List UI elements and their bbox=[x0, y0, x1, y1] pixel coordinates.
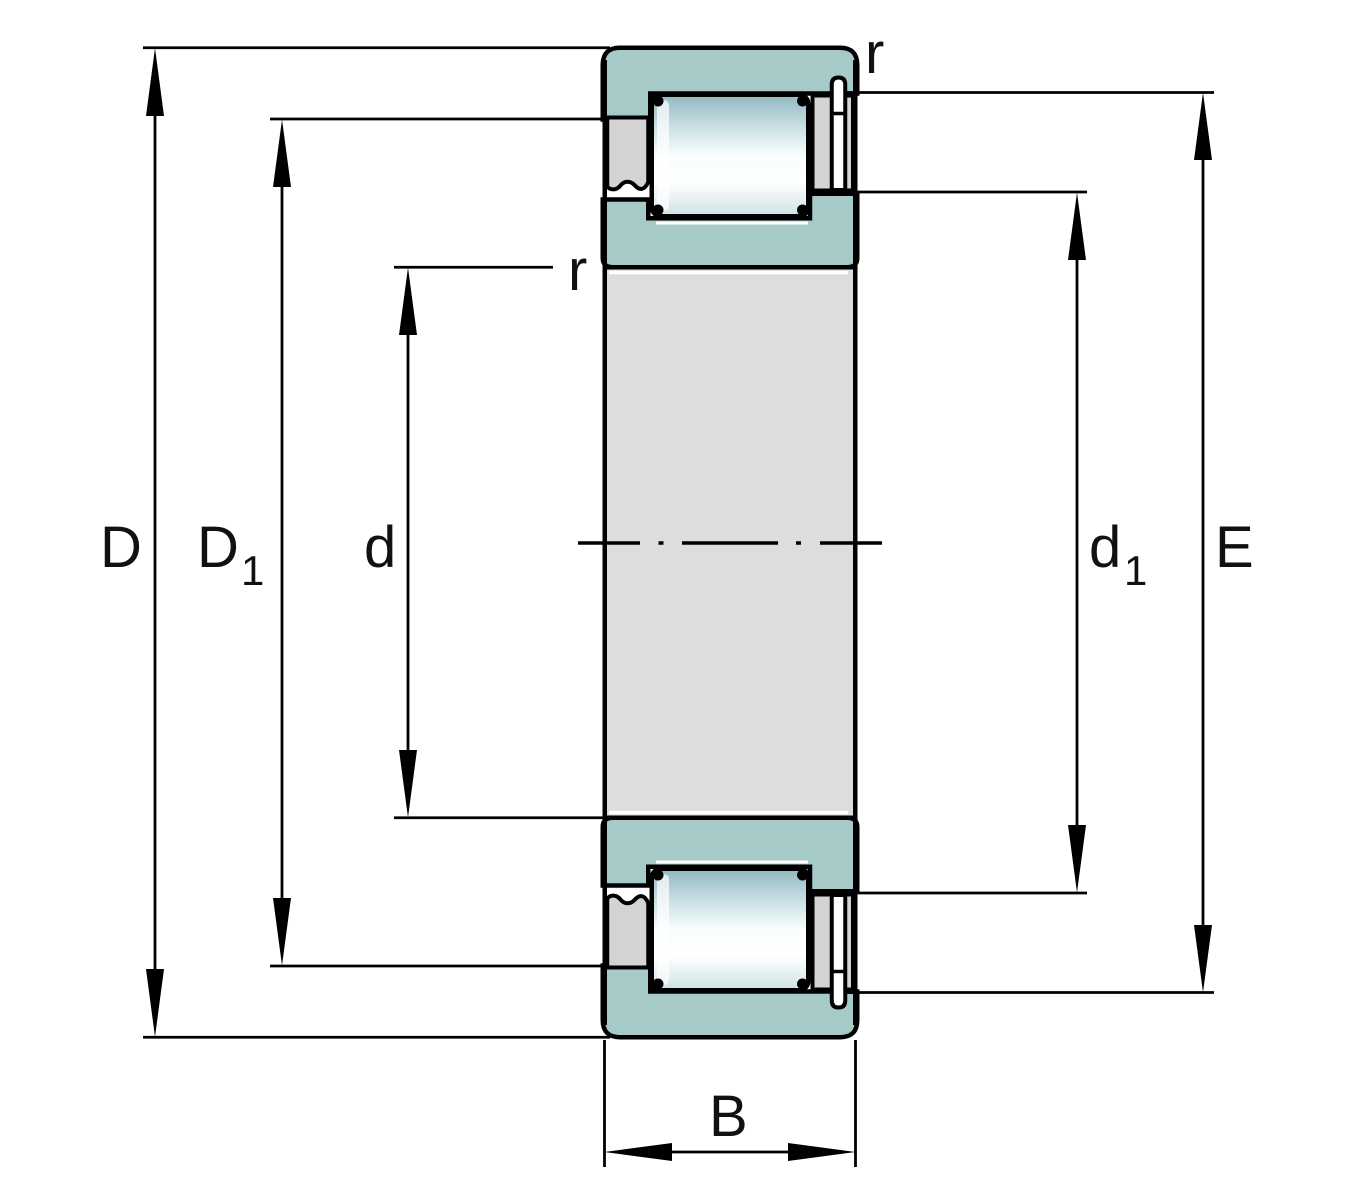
label-outside-diameter: D bbox=[100, 515, 142, 580]
bearing-dimension-diagram: D D 1 d d 1 E B r r bbox=[0, 0, 1350, 1200]
arrow-D1-bottom bbox=[273, 898, 291, 966]
dimension-d1 bbox=[1068, 193, 1086, 893]
label-inner-chamfer: r bbox=[568, 238, 587, 303]
dimension-D bbox=[146, 48, 164, 1037]
label-outer-flange-diameter: D bbox=[197, 515, 239, 580]
roller-corner-dot bbox=[797, 96, 808, 107]
roller-highlight bbox=[657, 874, 669, 985]
roller-corner-dot bbox=[653, 205, 664, 216]
dimension-D1 bbox=[273, 120, 291, 966]
arrow-d1-top bbox=[1068, 193, 1086, 261]
label-inner-flange-diameter: d bbox=[1089, 515, 1121, 580]
arrow-D1-top bbox=[273, 120, 291, 188]
label-bore-diameter: d bbox=[364, 515, 396, 580]
label-outer-chamfer: r bbox=[865, 21, 884, 86]
roller-corner-dot bbox=[653, 870, 664, 881]
arrow-d1-bottom bbox=[1068, 825, 1086, 893]
arrow-B-left bbox=[605, 1143, 673, 1161]
label-outer-flange-diameter-subscript: 1 bbox=[241, 547, 264, 594]
arrow-d-top bbox=[399, 268, 417, 336]
label-width: B bbox=[709, 1084, 748, 1149]
arrow-B-right bbox=[788, 1143, 856, 1161]
diagram-canvas: D D 1 d d 1 E B r r bbox=[0, 0, 1350, 1200]
arrow-E-bottom bbox=[1194, 925, 1212, 993]
roller-highlight bbox=[657, 100, 669, 211]
arrow-d-bottom bbox=[399, 750, 417, 818]
roller-upper bbox=[652, 95, 809, 217]
dimension-d bbox=[399, 268, 417, 818]
arrow-D-top bbox=[146, 48, 164, 116]
arrow-E-top bbox=[1194, 93, 1212, 161]
dimension-E bbox=[1194, 93, 1212, 993]
roller-lower bbox=[652, 869, 809, 991]
roller-corner-dot bbox=[797, 205, 808, 216]
roller-corner-dot bbox=[653, 96, 664, 107]
label-raceway-diameter: E bbox=[1215, 515, 1254, 580]
roller-corner-dot bbox=[653, 979, 664, 990]
roller-corner-dot bbox=[797, 870, 808, 881]
roller-corner-dot bbox=[797, 979, 808, 990]
label-inner-flange-diameter-subscript: 1 bbox=[1124, 547, 1147, 594]
arrow-D-bottom bbox=[146, 969, 164, 1037]
